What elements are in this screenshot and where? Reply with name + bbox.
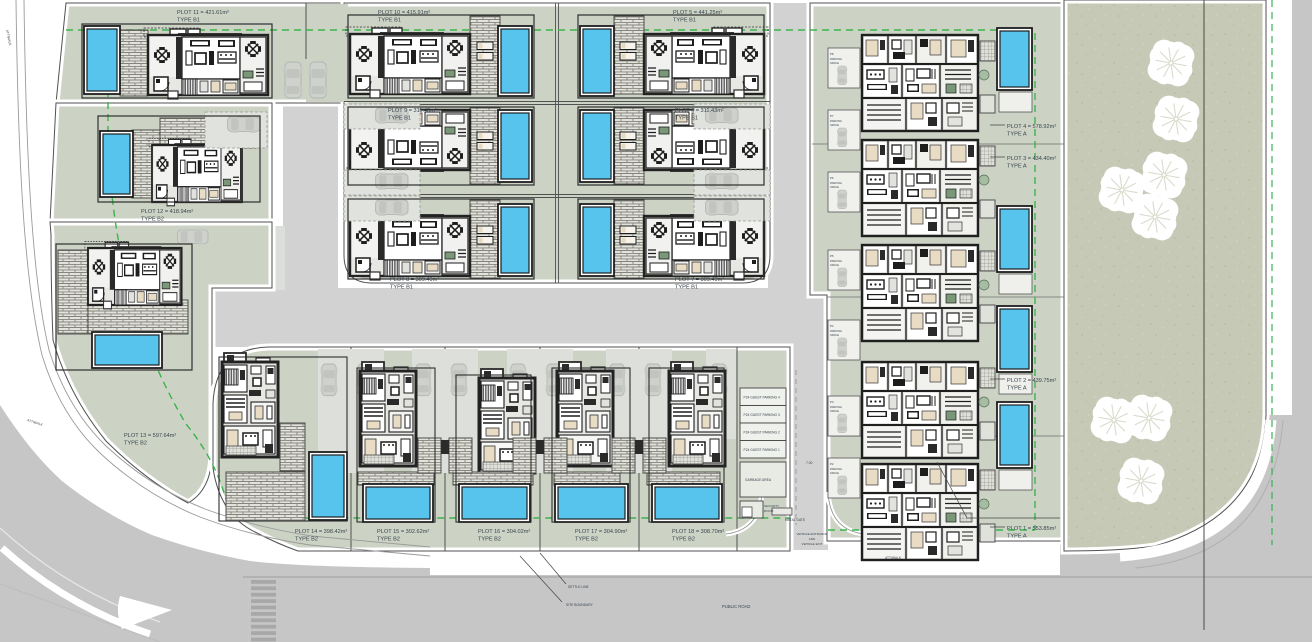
svg-text:P3: P3 (830, 400, 834, 404)
svg-text:P24 GUEST PARKING 1: P24 GUEST PARKING 1 (744, 448, 781, 452)
svg-text:TYPE B2: TYPE B2 (478, 537, 501, 543)
svg-text:ROOM: ROOM (764, 509, 774, 513)
svg-text:PLOT 1 = 553.85m²: PLOT 1 = 553.85m² (1007, 526, 1056, 532)
svg-text:TYPE B1: TYPE B1 (675, 116, 698, 122)
svg-text:SPACE: SPACE (830, 185, 839, 189)
svg-text:PARKING: PARKING (830, 259, 842, 263)
svg-text:TYPE B1: TYPE B1 (388, 116, 411, 122)
svg-text:SECURITY: SECURITY (764, 504, 779, 508)
svg-text:PLOT 11 = 421.61m²: PLOT 11 = 421.61m² (177, 10, 229, 16)
svg-text:METAL GATE: METAL GATE (785, 518, 806, 522)
svg-text:SPACE: SPACE (830, 333, 839, 337)
svg-text:TYPE B1: TYPE B1 (177, 18, 200, 24)
svg-text:TYPE B2: TYPE B2 (377, 537, 400, 543)
svg-text:P7: P7 (830, 114, 834, 118)
svg-text:TYPE B1: TYPE B1 (378, 18, 401, 24)
svg-text:VEHICLE ENTRANCE: VEHICLE ENTRANCE (796, 532, 827, 536)
svg-text:SPACE: SPACE (830, 471, 839, 475)
svg-text:PLOT 17 = 304.90m²: PLOT 17 = 304.90m² (575, 529, 627, 535)
svg-text:PUBLIC ROAD: PUBLIC ROAD (722, 604, 750, 609)
svg-text:TYPE B2: TYPE B2 (575, 537, 598, 543)
svg-text:PLOT 10 = 415.91m²: PLOT 10 = 415.91m² (378, 10, 430, 16)
svg-text:PARKING: PARKING (830, 119, 842, 123)
svg-text:PLOT 14 = 398.42m²: PLOT 14 = 398.42m² (295, 529, 347, 535)
svg-text:SPACE: SPACE (830, 61, 839, 65)
svg-text:PLOT 9 = 311.43m²: PLOT 9 = 311.43m² (388, 108, 437, 114)
svg-text:P6: P6 (830, 176, 834, 180)
svg-text:P24 GUEST PARKING 3: P24 GUEST PARKING 3 (744, 413, 781, 417)
svg-text:TYPE A: TYPE A (1007, 534, 1027, 540)
svg-text:SPACE: SPACE (830, 123, 839, 127)
svg-text:TYPE A: TYPE A (1007, 132, 1027, 138)
svg-text:SITE BOUNDARY: SITE BOUNDARY (566, 603, 594, 607)
svg-text:SPACE: SPACE (830, 263, 839, 267)
svg-text:ATTIWALK: ATTIWALK (885, 556, 902, 560)
svg-text:7.00: 7.00 (806, 461, 813, 465)
svg-text:PLOT 18 = 308.70m²: PLOT 18 = 308.70m² (672, 529, 724, 535)
svg-text:PARKING: PARKING (830, 467, 842, 471)
svg-text:P4: P4 (830, 324, 834, 328)
svg-text:PLOT 15 = 302.62m²: PLOT 15 = 302.62m² (377, 529, 429, 535)
svg-text:PLOT 4 = 578.92m²: PLOT 4 = 578.92m² (1007, 124, 1056, 130)
svg-text:TYPE A: TYPE A (1007, 164, 1027, 170)
svg-text:AND: AND (809, 537, 816, 541)
svg-text:P24 GUEST PARKING 4: P24 GUEST PARKING 4 (744, 396, 781, 400)
svg-text:PLOT 6 = 311.43m²: PLOT 6 = 311.43m² (675, 108, 724, 114)
svg-text:TYPE B1: TYPE B1 (390, 285, 413, 291)
svg-text:P5: P5 (830, 254, 834, 258)
svg-text:PARKING: PARKING (830, 329, 842, 333)
svg-text:PLOT 2 = 439.75m²: PLOT 2 = 439.75m² (1007, 378, 1056, 384)
svg-text:TYPE B2: TYPE B2 (124, 441, 147, 447)
svg-text:PLOT 12 = 418.94m²: PLOT 12 = 418.94m² (141, 209, 193, 215)
svg-text:PLOT 8 = 309.49m²: PLOT 8 = 309.49m² (390, 277, 439, 283)
svg-text:TYPE B2: TYPE B2 (672, 537, 695, 543)
svg-text:PLOT 13 = 597.64m²: PLOT 13 = 597.64m² (124, 433, 176, 439)
svg-text:TYPE B2: TYPE B2 (295, 537, 318, 543)
svg-text:P2: P2 (830, 462, 834, 466)
svg-text:PARKING: PARKING (830, 181, 842, 185)
svg-text:GARBAGE AREA: GARBAGE AREA (745, 478, 772, 482)
svg-text:SPACE: SPACE (830, 409, 839, 413)
svg-text:SETTLE LINE: SETTLE LINE (568, 585, 590, 589)
svg-text:P8: P8 (830, 52, 834, 56)
svg-text:PLOT 3 = 434.40m²: PLOT 3 = 434.40m² (1007, 156, 1056, 162)
svg-text:VEHICLE EXIT: VEHICLE EXIT (802, 542, 823, 546)
svg-text:PLOT 5 = 441.25m²: PLOT 5 = 441.25m² (673, 10, 722, 16)
svg-text:TYPE A: TYPE A (1007, 386, 1027, 392)
svg-text:PLOT 16 = 304.02m²: PLOT 16 = 304.02m² (478, 529, 530, 535)
svg-text:PARKING: PARKING (830, 405, 842, 409)
svg-text:TYPE B1: TYPE B1 (673, 18, 696, 24)
svg-text:TYPE B1: TYPE B1 (675, 285, 698, 291)
svg-text:P24 GUEST PARKING 2: P24 GUEST PARKING 2 (744, 431, 781, 435)
svg-text:PLOT 7 = 309.49m²: PLOT 7 = 309.49m² (675, 277, 724, 283)
svg-text:TYPE B2: TYPE B2 (141, 217, 164, 223)
svg-text:PARKING: PARKING (830, 57, 842, 61)
